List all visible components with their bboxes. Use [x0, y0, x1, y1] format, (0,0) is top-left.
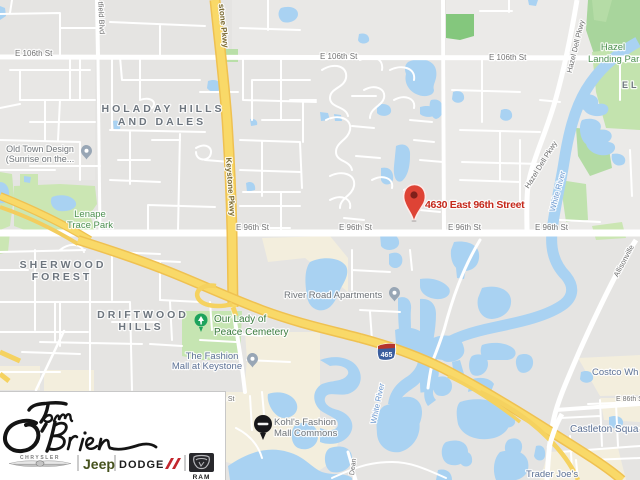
svg-text:E 106th St: E 106th St: [320, 52, 358, 61]
svg-text:tfield Blvd: tfield Blvd: [96, 1, 107, 34]
svg-text:River Road Apartments: River Road Apartments: [284, 290, 382, 301]
svg-text:DODGE: DODGE: [119, 459, 164, 471]
svg-text:E 96th St: E 96th St: [448, 223, 482, 232]
svg-text:4630 East 96th Street: 4630 East 96th Street: [425, 199, 525, 211]
svg-text:HOLADAY HILLS: HOLADAY HILLS: [101, 103, 224, 115]
svg-text:Old Town Design: Old Town Design: [6, 144, 74, 154]
svg-text:E 86th St: E 86th St: [616, 396, 640, 403]
svg-text:AND DALES: AND DALES: [118, 116, 206, 128]
svg-text:E 106th St: E 106th St: [15, 49, 53, 58]
svg-text:DRIFTWOOD: DRIFTWOOD: [97, 309, 189, 321]
svg-text:RAM: RAM: [193, 474, 211, 480]
svg-text:Mall Commons: Mall Commons: [274, 428, 338, 439]
svg-text:Trace Park: Trace Park: [67, 220, 113, 231]
svg-text:Hazel: Hazel: [601, 42, 625, 53]
svg-text:E 96th St: E 96th St: [339, 223, 373, 232]
svg-text:Mall at Keystone: Mall at Keystone: [172, 361, 242, 372]
svg-text:Jeep: Jeep: [83, 456, 115, 472]
svg-text:465: 465: [381, 352, 393, 359]
svg-text:FOREST: FOREST: [32, 271, 93, 283]
svg-text:Costco Wh: Costco Wh: [592, 367, 638, 378]
svg-text:EL: EL: [622, 80, 640, 90]
svg-text:E 96th St: E 96th St: [535, 223, 569, 232]
svg-text:Lenape: Lenape: [74, 209, 106, 220]
svg-text:HILLS: HILLS: [118, 321, 163, 333]
svg-text:Landing Par: Landing Par: [588, 54, 639, 65]
svg-text:Peace Cemetery: Peace Cemetery: [214, 327, 288, 338]
svg-text:(Sunrise on the...: (Sunrise on the...: [6, 154, 75, 164]
svg-text:E 106th St: E 106th St: [489, 53, 527, 62]
svg-text:SHERWOOD: SHERWOOD: [20, 259, 107, 271]
svg-text:Kohl's Fashion: Kohl's Fashion: [274, 417, 336, 428]
svg-text:Castleton Squa: Castleton Squa: [570, 424, 639, 435]
svg-text:CHRYSLER: CHRYSLER: [20, 455, 60, 461]
svg-text:Trader Joe's: Trader Joe's: [526, 469, 578, 480]
svg-text:E 96th St: E 96th St: [236, 223, 270, 232]
svg-text:Our Lady of: Our Lady of: [214, 314, 266, 325]
